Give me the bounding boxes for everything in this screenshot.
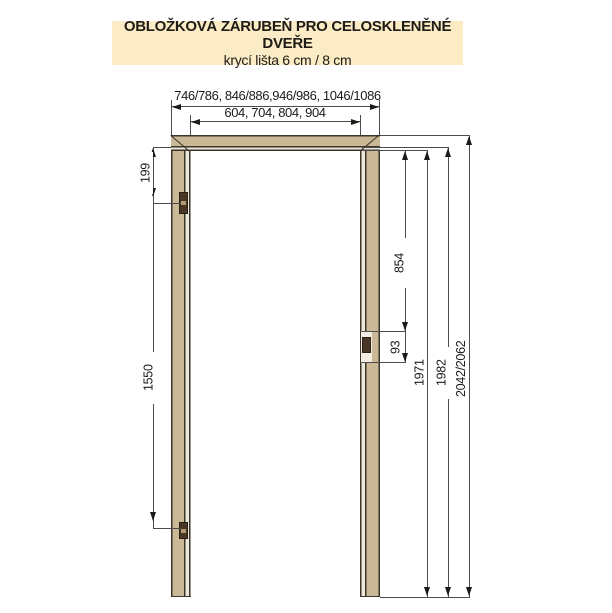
arrowhead-down-icon (466, 587, 472, 596)
dim-hinge-line (153, 147, 154, 528)
strike-latch (362, 337, 371, 353)
extension-line (380, 135, 470, 136)
extension-line (362, 331, 406, 332)
page-title: OBLOŽKOVÁ ZÁRUBEŇ PRO CELOSKLENĚNÉ DVEŘE (112, 18, 463, 52)
extension-line (380, 597, 470, 598)
dim-frame-height-label: 1982 (434, 347, 449, 399)
extension-line (360, 115, 361, 135)
dim-hinge-top-offset-label: 199 (138, 152, 153, 194)
extension-line (379, 100, 380, 135)
arrowhead-up-icon (424, 151, 430, 160)
dim-clear-widths-line (190, 121, 361, 122)
dim-clear-height-label: 1971 (412, 347, 427, 399)
frame-head (171, 135, 380, 151)
arrowhead-right-icon (351, 119, 360, 125)
arrowhead-up-icon (402, 151, 408, 160)
arrowhead-down-icon (424, 587, 430, 596)
frame-right-jamb (360, 135, 380, 597)
header-band: OBLOŽKOVÁ ZÁRUBEŇ PRO CELOSKLENĚNÉ DVEŘE… (112, 21, 463, 65)
dim-clear-widths-label: 604, 704, 804, 904 (175, 105, 375, 120)
extension-line (362, 150, 428, 151)
arrowhead-down-icon (150, 512, 156, 521)
door-frame-diagram: OBLOŽKOVÁ ZÁRUBEŇ PRO CELOSKLENĚNÉ DVEŘE… (0, 0, 612, 613)
dim-strike-offset-label: 854 (392, 238, 407, 288)
dim-outer-widths-label: 746/786, 846/886,946/986, 1046/1086 (150, 88, 405, 103)
hinge-bottom (179, 522, 188, 539)
page-subtitle: krycí lišta 6 cm / 8 cm (224, 52, 352, 68)
dim-overall-height-line (469, 135, 470, 597)
extension-line (153, 528, 181, 529)
arrowhead-down-icon (402, 322, 408, 331)
extension-line (153, 203, 181, 204)
dim-strike-height-label: 93 (388, 334, 403, 360)
hinge-pin (181, 529, 186, 533)
dim-overall-height-label: 2042/2062 (453, 330, 469, 408)
extension-line (362, 147, 449, 148)
arrowhead-up-icon (445, 148, 451, 157)
extension-line (362, 362, 406, 363)
arrowhead-down-icon (445, 587, 451, 596)
dim-hinge-spacing-label: 1550 (141, 352, 156, 404)
hinge-pin (181, 201, 186, 205)
dim-clear-height-line (427, 150, 428, 597)
arrowhead-up-icon (466, 136, 472, 145)
arrowhead-left-icon (191, 119, 200, 125)
